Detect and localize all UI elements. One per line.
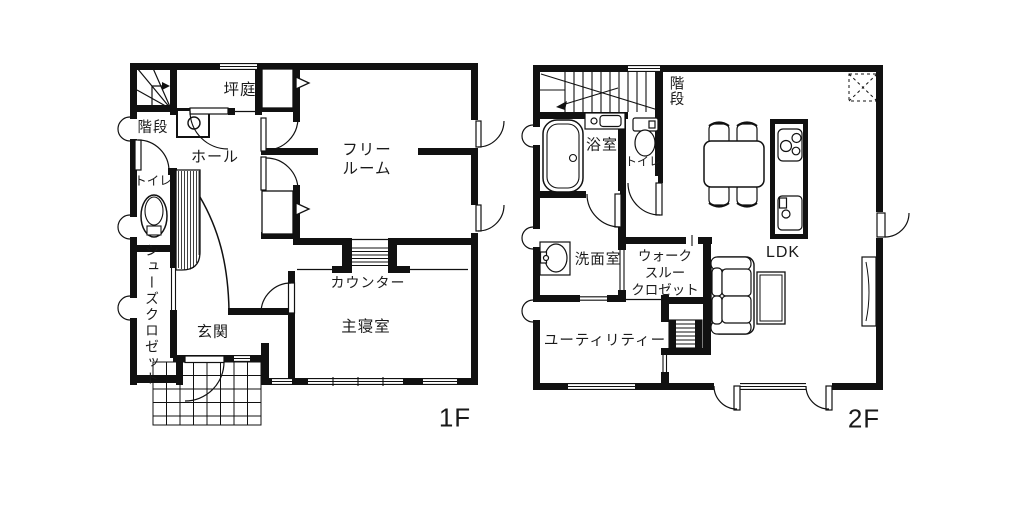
stairs-2f-icon — [540, 72, 658, 112]
room-label-utility-2f: ユーティリティー — [544, 332, 666, 350]
bathroom-door-arc — [586, 191, 621, 227]
room-label-bathroom-2f: 浴室 — [586, 137, 618, 156]
room-label-ldk-2f: LDK — [766, 243, 800, 263]
floor-tag-1f: 1F — [439, 403, 471, 434]
floorplan-page: 坪庭 階段 ホール トイレ シューズクロゼット 玄関 フリー ルーム カウンター… — [0, 0, 1024, 508]
floor-2f — [522, 65, 909, 410]
room-label-counter-1f: カウンター — [331, 274, 406, 292]
room-label-genkan-1f: 玄関 — [197, 324, 229, 343]
washroom-sliding-door — [580, 295, 607, 302]
toilet-2f-icon — [633, 118, 658, 156]
tv-board-icon — [862, 257, 876, 326]
ldk-right-door-arc — [876, 212, 909, 238]
room-label-walkthrough-closet-2f: ウォーク スルー クロゼット — [631, 249, 699, 300]
shelf-steps-icon — [669, 320, 702, 348]
floor-tag-2f: 2F — [848, 404, 880, 435]
hall-louver-closet-icon — [176, 170, 200, 270]
floor-1f — [118, 63, 504, 425]
room-label-kaidan-2f: 階段 — [666, 76, 687, 107]
room-label-shoes-closet-1f: シューズクロゼット — [142, 243, 162, 387]
room-label-master-bedroom-1f: 主寝室 — [341, 317, 391, 336]
low-table-icon — [757, 272, 785, 324]
entrance-porch-tiles — [153, 362, 261, 425]
room-label-hall-1f: ホール — [191, 149, 239, 168]
room-label-tsuboniwa-1f: 坪庭 — [223, 80, 256, 99]
kitchen-island-icon — [770, 119, 808, 239]
utility-door — [661, 355, 669, 372]
stairs-1f-icon — [137, 66, 171, 109]
dining-table — [704, 141, 764, 187]
hall-curved-wall — [200, 197, 229, 310]
room-label-toilet-1f: トイレ — [134, 174, 172, 190]
room-label-washroom-2f: 洗面室 — [575, 251, 622, 269]
toilet-1f-door-arc — [135, 140, 169, 175]
toilet-1f-icon — [141, 195, 167, 237]
bath-vanity-icon — [585, 113, 625, 129]
room-label-free-room-1f: フリー ルーム — [342, 141, 392, 180]
washbasin-icon — [540, 242, 570, 275]
toilet-2f-door-arc — [626, 176, 662, 215]
shoes-closet-sliding-door — [170, 268, 177, 310]
bathtub-icon — [543, 120, 583, 192]
dining-set-icon — [704, 123, 764, 207]
room-label-kaidan-1f: 階段 — [138, 119, 169, 137]
counter-desk-icon — [352, 248, 388, 266]
sofa-icon — [711, 257, 754, 334]
closet-top-opening — [686, 235, 698, 246]
skylight-icon — [849, 74, 877, 101]
room-label-toilet-2f: トイレ — [625, 155, 661, 170]
